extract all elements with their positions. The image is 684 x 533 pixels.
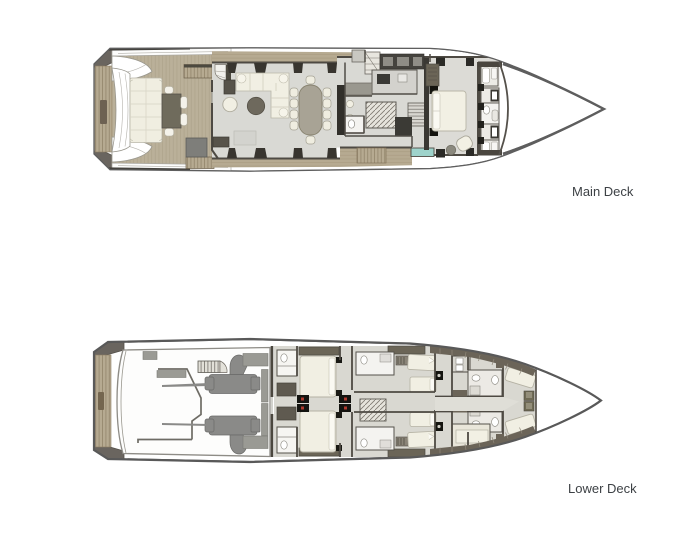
svg-text:Lower Deck: Lower Deck [568, 481, 637, 496]
svg-text:Main Deck: Main Deck [572, 184, 634, 199]
